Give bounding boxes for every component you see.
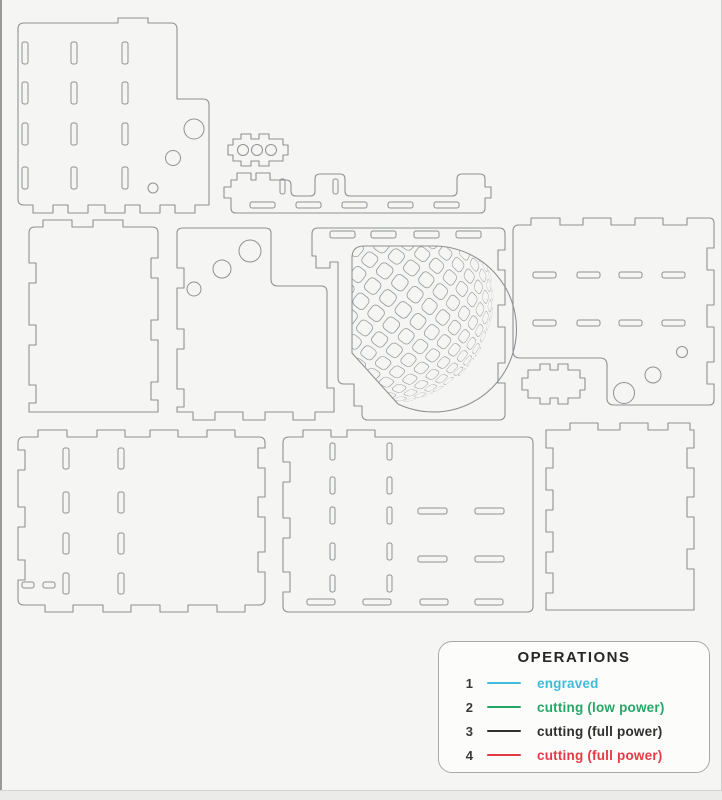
legend-label: cutting (full power) [537,724,662,739]
legend-line-swatch [487,682,521,685]
legend-line-swatch [487,730,521,733]
panel-mid-right [513,218,714,405]
panel-bottom-right [546,423,694,610]
legend-number: 1 [457,676,473,691]
legend-row-1: 1 engraved [439,671,709,695]
panel-top-left [18,18,209,213]
long-rail [224,173,491,213]
legend-line-swatch [487,706,521,709]
panel-dome [312,228,505,420]
panel-mid-circles [177,228,334,420]
legend-label: cutting (low power) [537,700,665,715]
legend: OPERATIONS 1 engraved 2 cutting (low pow… [438,641,710,773]
legend-number: 2 [457,700,473,715]
legend-number: 4 [457,748,473,763]
dome-dimple-pattern [283,193,494,404]
legend-label: engraved [537,676,599,691]
window-bottom-edge [0,790,722,800]
legend-title: OPERATIONS [439,649,709,666]
legend-label: cutting (full power) [537,748,662,763]
small-tabbed-plate-2 [522,364,585,404]
legend-row-3: 3 cutting (full power) [439,719,709,743]
legend-row-2: 2 cutting (low power) [439,695,709,719]
legend-row-4: 4 cutting (full power) [439,743,709,767]
small-tabbed-plate [228,134,288,166]
legend-line-swatch [487,754,521,757]
panel-bottom-left [18,430,265,612]
panel-bottom-middle [283,430,533,612]
legend-number: 3 [457,724,473,739]
window-left-edge [0,0,2,800]
panel-mid-left [29,220,158,412]
